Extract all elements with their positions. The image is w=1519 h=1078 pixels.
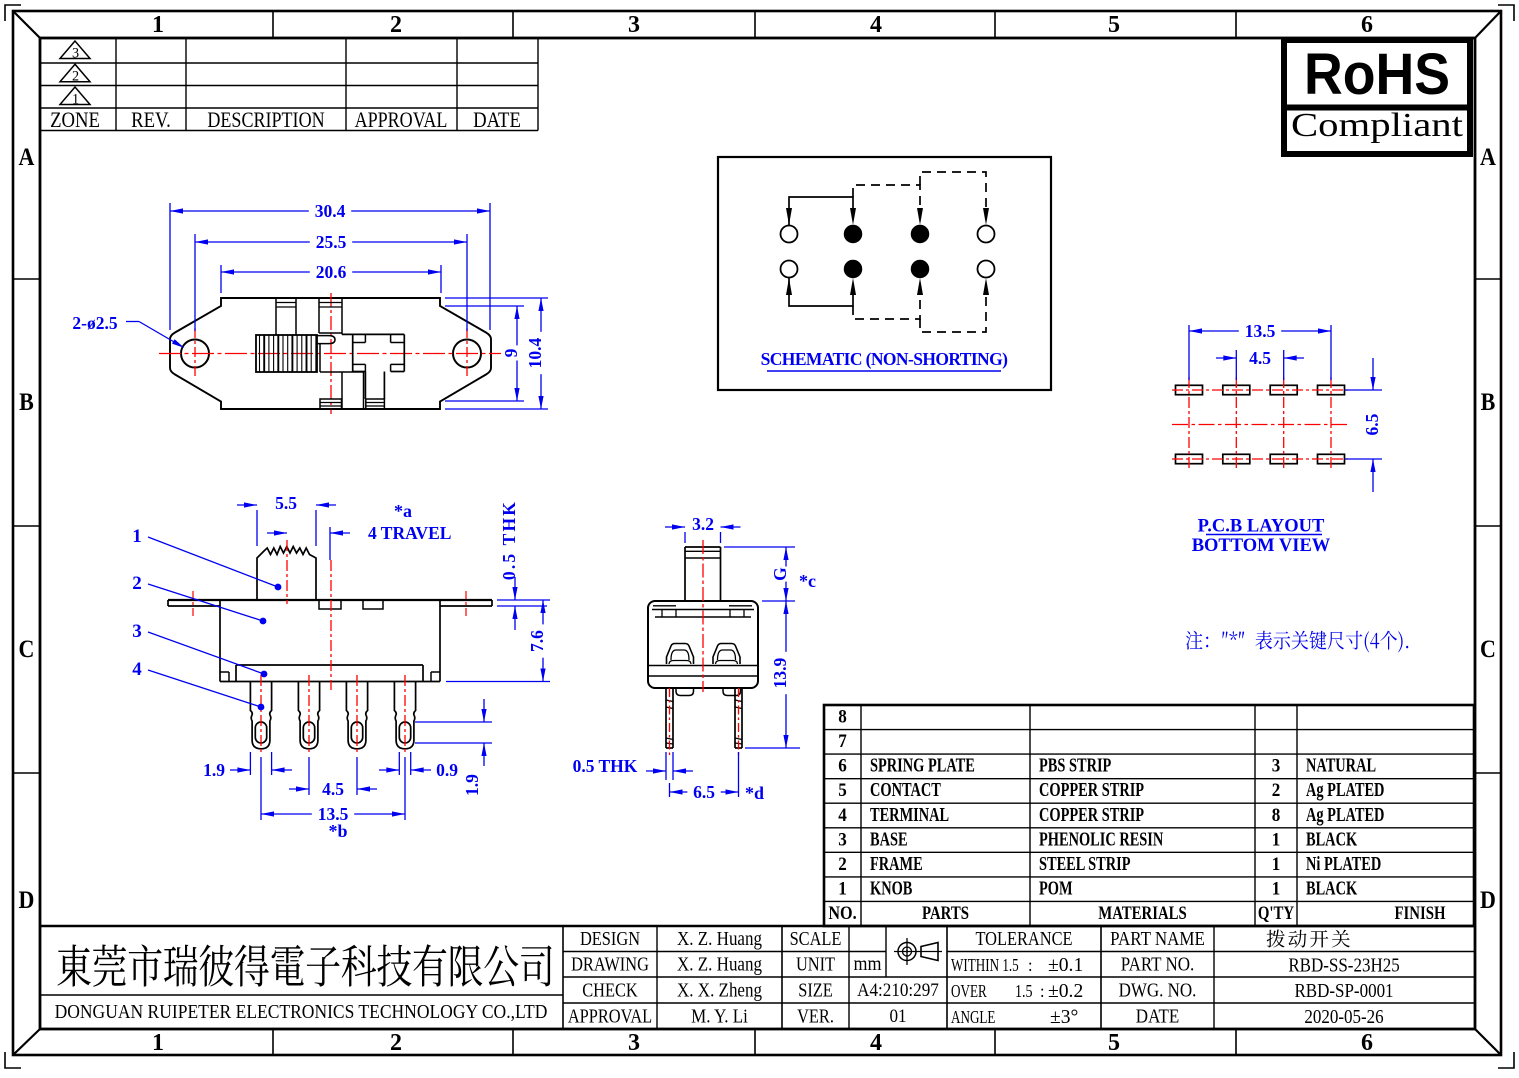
svg-text:BLACK: BLACK [1306,827,1358,850]
svg-text:POM: POM [1039,876,1073,899]
svg-text:DRAWING: DRAWING [571,953,649,975]
svg-text:NATURAL: NATURAL [1306,753,1376,776]
svg-text:X. X. Zheng: X. X. Zheng [677,979,762,1002]
svg-text:PART NAME: PART NAME [1110,928,1205,951]
svg-text:TOLERANCE: TOLERANCE [975,928,1072,950]
svg-text:01: 01 [889,1005,906,1026]
svg-text:7: 7 [838,730,847,751]
svg-text:UNIT: UNIT [796,953,835,975]
svg-text:Ag PLATED: Ag PLATED [1306,802,1384,825]
svg-text:M. Y. Li: M. Y. Li [691,1005,748,1028]
svg-text:4 TRAVEL: 4 TRAVEL [368,523,451,543]
svg-text:2: 2 [838,853,847,874]
svg-text:3: 3 [72,45,79,61]
svg-text:FINISH: FINISH [1395,902,1446,923]
svg-text:1: 1 [1272,878,1281,899]
svg-text:STEEL STRIP: STEEL STRIP [1039,852,1131,875]
svg-text:6: 6 [1361,12,1373,38]
svg-text:2: 2 [390,12,402,38]
svg-text:COPPER STRIP: COPPER STRIP [1039,802,1144,825]
svg-text:D: D [1480,887,1496,915]
svg-text:3: 3 [628,1030,640,1056]
svg-text:RBD-SP-0001: RBD-SP-0001 [1294,980,1393,1003]
svg-text:REV.: REV. [131,109,171,133]
svg-text:0.9: 0.9 [436,760,458,780]
svg-text:30.4: 30.4 [315,201,346,221]
svg-text:COPPER STRIP: COPPER STRIP [1039,778,1144,801]
svg-text:B: B [19,389,34,417]
svg-text:SIZE: SIZE [798,979,833,1001]
svg-text:4: 4 [870,1030,882,1056]
svg-text:DWG. NO.: DWG. NO. [1119,979,1197,1002]
svg-text:G: G [770,567,790,581]
svg-text:±0.1: ±0.1 [1048,954,1083,976]
svg-text:1.9: 1.9 [203,760,225,780]
svg-text:DESIGN: DESIGN [580,928,640,950]
svg-text:10.4: 10.4 [525,337,545,368]
svg-text:3: 3 [132,621,142,642]
svg-text:*b: *b [328,821,347,841]
svg-text:8: 8 [838,706,847,727]
svg-text:BOTTOM VIEW: BOTTOM VIEW [1192,536,1331,556]
svg-text:A: A [19,144,35,172]
svg-text::: : [1028,955,1033,975]
svg-text:25.5: 25.5 [316,232,347,252]
svg-text:±3°: ±3° [1050,1006,1078,1028]
svg-text:DATE: DATE [1136,1005,1179,1028]
svg-text:Q'TY: Q'TY [1258,902,1294,923]
svg-text:C: C [19,636,35,664]
svg-text:SCHEMATIC (NON-SHORTING): SCHEMATIC (NON-SHORTING) [761,349,1008,369]
svg-text:Ni PLATED: Ni PLATED [1306,852,1381,875]
svg-text:1: 1 [838,878,847,899]
svg-text:4: 4 [132,659,142,680]
svg-text:DATE: DATE [473,109,521,133]
svg-text:MATERIALS: MATERIALS [1098,902,1187,923]
svg-text:CONTACT: CONTACT [870,778,941,801]
svg-text:C: C [1480,636,1496,664]
svg-text:ANGLE: ANGLE [951,1008,995,1027]
svg-text:0.5 THK: 0.5 THK [573,756,638,776]
svg-text:mm: mm [854,953,882,975]
svg-text:1: 1 [152,12,164,38]
svg-text:OVER: OVER [951,982,987,1001]
svg-text:B: B [1481,389,1496,417]
svg-text:Ag PLATED: Ag PLATED [1306,778,1384,801]
svg-text:13.5: 13.5 [1245,321,1276,341]
svg-text:6.5: 6.5 [693,782,715,802]
svg-text:2-ø2.5: 2-ø2.5 [72,313,117,333]
svg-text:1: 1 [132,526,142,547]
svg-text:3.2: 3.2 [692,514,714,534]
svg-text:4: 4 [838,804,847,825]
svg-text:WITHIN 1.5: WITHIN 1.5 [951,956,1019,975]
svg-text:2: 2 [72,68,79,84]
svg-text:PARTS: PARTS [922,902,969,923]
svg-text::: : [1040,981,1045,1001]
svg-text:X. Z. Huang: X. Z. Huang [677,928,762,951]
svg-text:6: 6 [838,755,847,776]
svg-text:PBS STRIP: PBS STRIP [1039,753,1112,776]
svg-text:TERMINAL: TERMINAL [870,802,949,825]
svg-text:APPROVAL: APPROVAL [568,1005,652,1027]
svg-text:FRAME: FRAME [870,852,923,875]
svg-text:PHENOLIC RESIN: PHENOLIC RESIN [1039,827,1164,850]
svg-text:7.6: 7.6 [527,630,547,652]
svg-text:DESCRIPTION: DESCRIPTION [207,108,325,132]
svg-text:2: 2 [390,1030,402,1056]
svg-text:4: 4 [870,12,882,38]
svg-text:4.5: 4.5 [322,779,344,799]
svg-text:*a: *a [394,501,412,521]
svg-text:2020-05-26: 2020-05-26 [1304,1006,1383,1029]
svg-text:±0.2: ±0.2 [1048,980,1083,1002]
svg-text:1.9: 1.9 [462,774,482,796]
svg-text:1: 1 [72,91,79,107]
svg-text:5: 5 [838,779,847,800]
svg-text:0.5 THK: 0.5 THK [499,500,519,580]
svg-text:3: 3 [628,12,640,38]
svg-text:RBD-SS-23H25: RBD-SS-23H25 [1288,954,1399,977]
svg-text:4.5: 4.5 [1249,348,1271,368]
svg-text:A4:210:297: A4:210:297 [857,979,939,1000]
svg-text:VER.: VER. [797,1005,834,1027]
svg-text:RoHS: RoHS [1304,42,1450,107]
svg-text:5: 5 [1108,1030,1120,1056]
svg-text:ZONE: ZONE [50,109,100,133]
svg-text:1: 1 [152,1030,164,1056]
svg-text:SCALE: SCALE [790,928,842,950]
svg-text:1: 1 [1272,829,1281,850]
svg-text:1.5: 1.5 [1015,983,1033,1002]
svg-text:3: 3 [838,829,847,850]
svg-text:6: 6 [1361,1030,1373,1056]
svg-text:KNOB: KNOB [870,876,913,899]
svg-text:APPROVAL: APPROVAL [355,108,448,132]
svg-text:*d: *d [745,783,764,803]
svg-text:A: A [1480,144,1496,172]
svg-text:D: D [19,887,35,915]
svg-text:3: 3 [1272,755,1281,776]
svg-text:1: 1 [1272,853,1281,874]
svg-text:5: 5 [1108,12,1120,38]
svg-text:13.9: 13.9 [770,657,790,688]
svg-text:SPRING PLATE: SPRING PLATE [870,753,975,776]
svg-text:X. Z. Huang: X. Z. Huang [677,953,762,976]
svg-text:5.5: 5.5 [275,493,297,513]
svg-text:6.5: 6.5 [1362,413,1382,435]
svg-text:Compliant: Compliant [1291,107,1464,144]
svg-text:NO.: NO. [828,902,856,924]
svg-text:BLACK: BLACK [1306,876,1358,899]
svg-text:2: 2 [132,573,142,594]
svg-text:PART NO.: PART NO. [1121,953,1195,976]
svg-text:CHECK: CHECK [582,979,638,1001]
svg-text:*c: *c [799,571,816,591]
svg-text:20.6: 20.6 [316,262,347,282]
svg-text:8: 8 [1272,804,1281,825]
svg-text:DONGUAN RUIPETER ELECTRONICS T: DONGUAN RUIPETER ELECTRONICS TECHNOLOGY … [55,1001,548,1024]
svg-text:9: 9 [501,348,521,357]
svg-text:P.C.B LAYOUT: P.C.B LAYOUT [1198,517,1325,537]
svg-text:BASE: BASE [870,827,908,850]
svg-text:2: 2 [1272,779,1281,800]
